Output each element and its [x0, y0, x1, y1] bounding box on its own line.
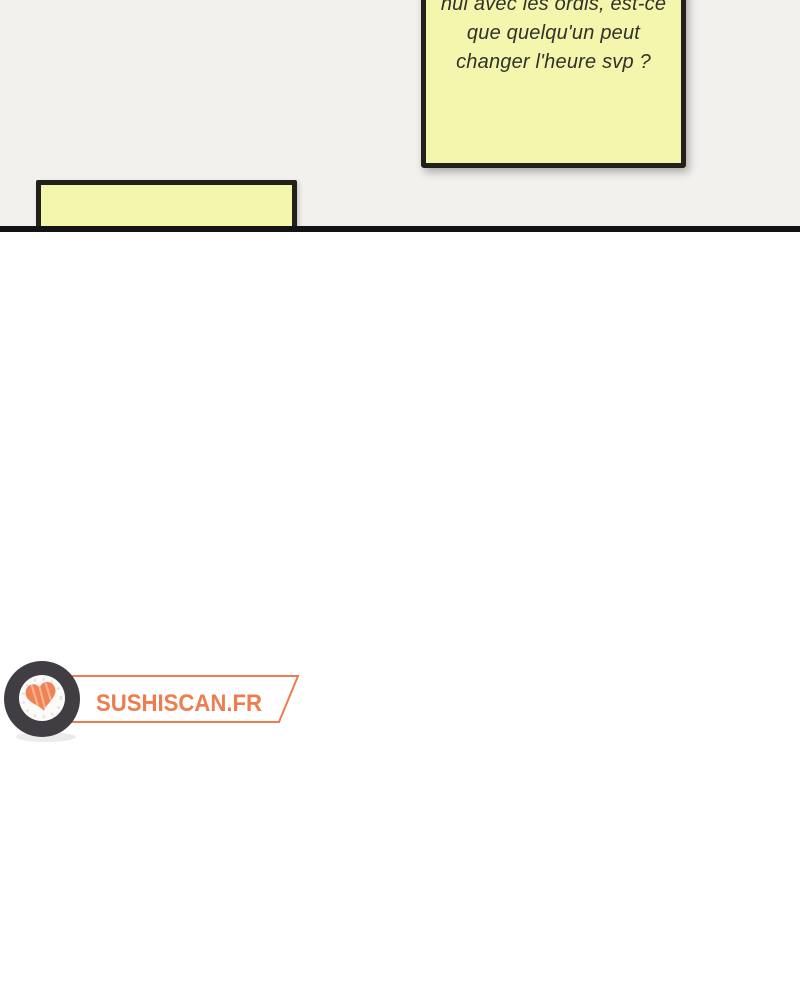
sticky-note: nul avec les ordis, est-ce que quelqu'un…	[421, 0, 686, 168]
yellow-strip-panel	[36, 180, 297, 226]
note-line-3: changer l'heure svp ?	[426, 48, 681, 77]
sticky-note-text: nul avec les ordis, est-ce que quelqu'un…	[426, 0, 681, 77]
logo-site-name: SUSHISCAN.FR	[96, 690, 262, 717]
comic-panel-background: nul avec les ordis, est-ce que quelqu'un…	[0, 0, 800, 226]
sushiscan-logo: SUSHISCAN.FR	[0, 655, 320, 745]
panel-divider-line	[0, 226, 800, 232]
note-line-1: nul avec les ordis, est-ce	[426, 0, 681, 19]
comic-page: nul avec les ordis, est-ce que quelqu'un…	[0, 0, 800, 1000]
note-line-2: que quelqu'un peut	[426, 19, 681, 48]
sushiscan-logo-svg: SUSHISCAN.FR	[0, 655, 320, 745]
